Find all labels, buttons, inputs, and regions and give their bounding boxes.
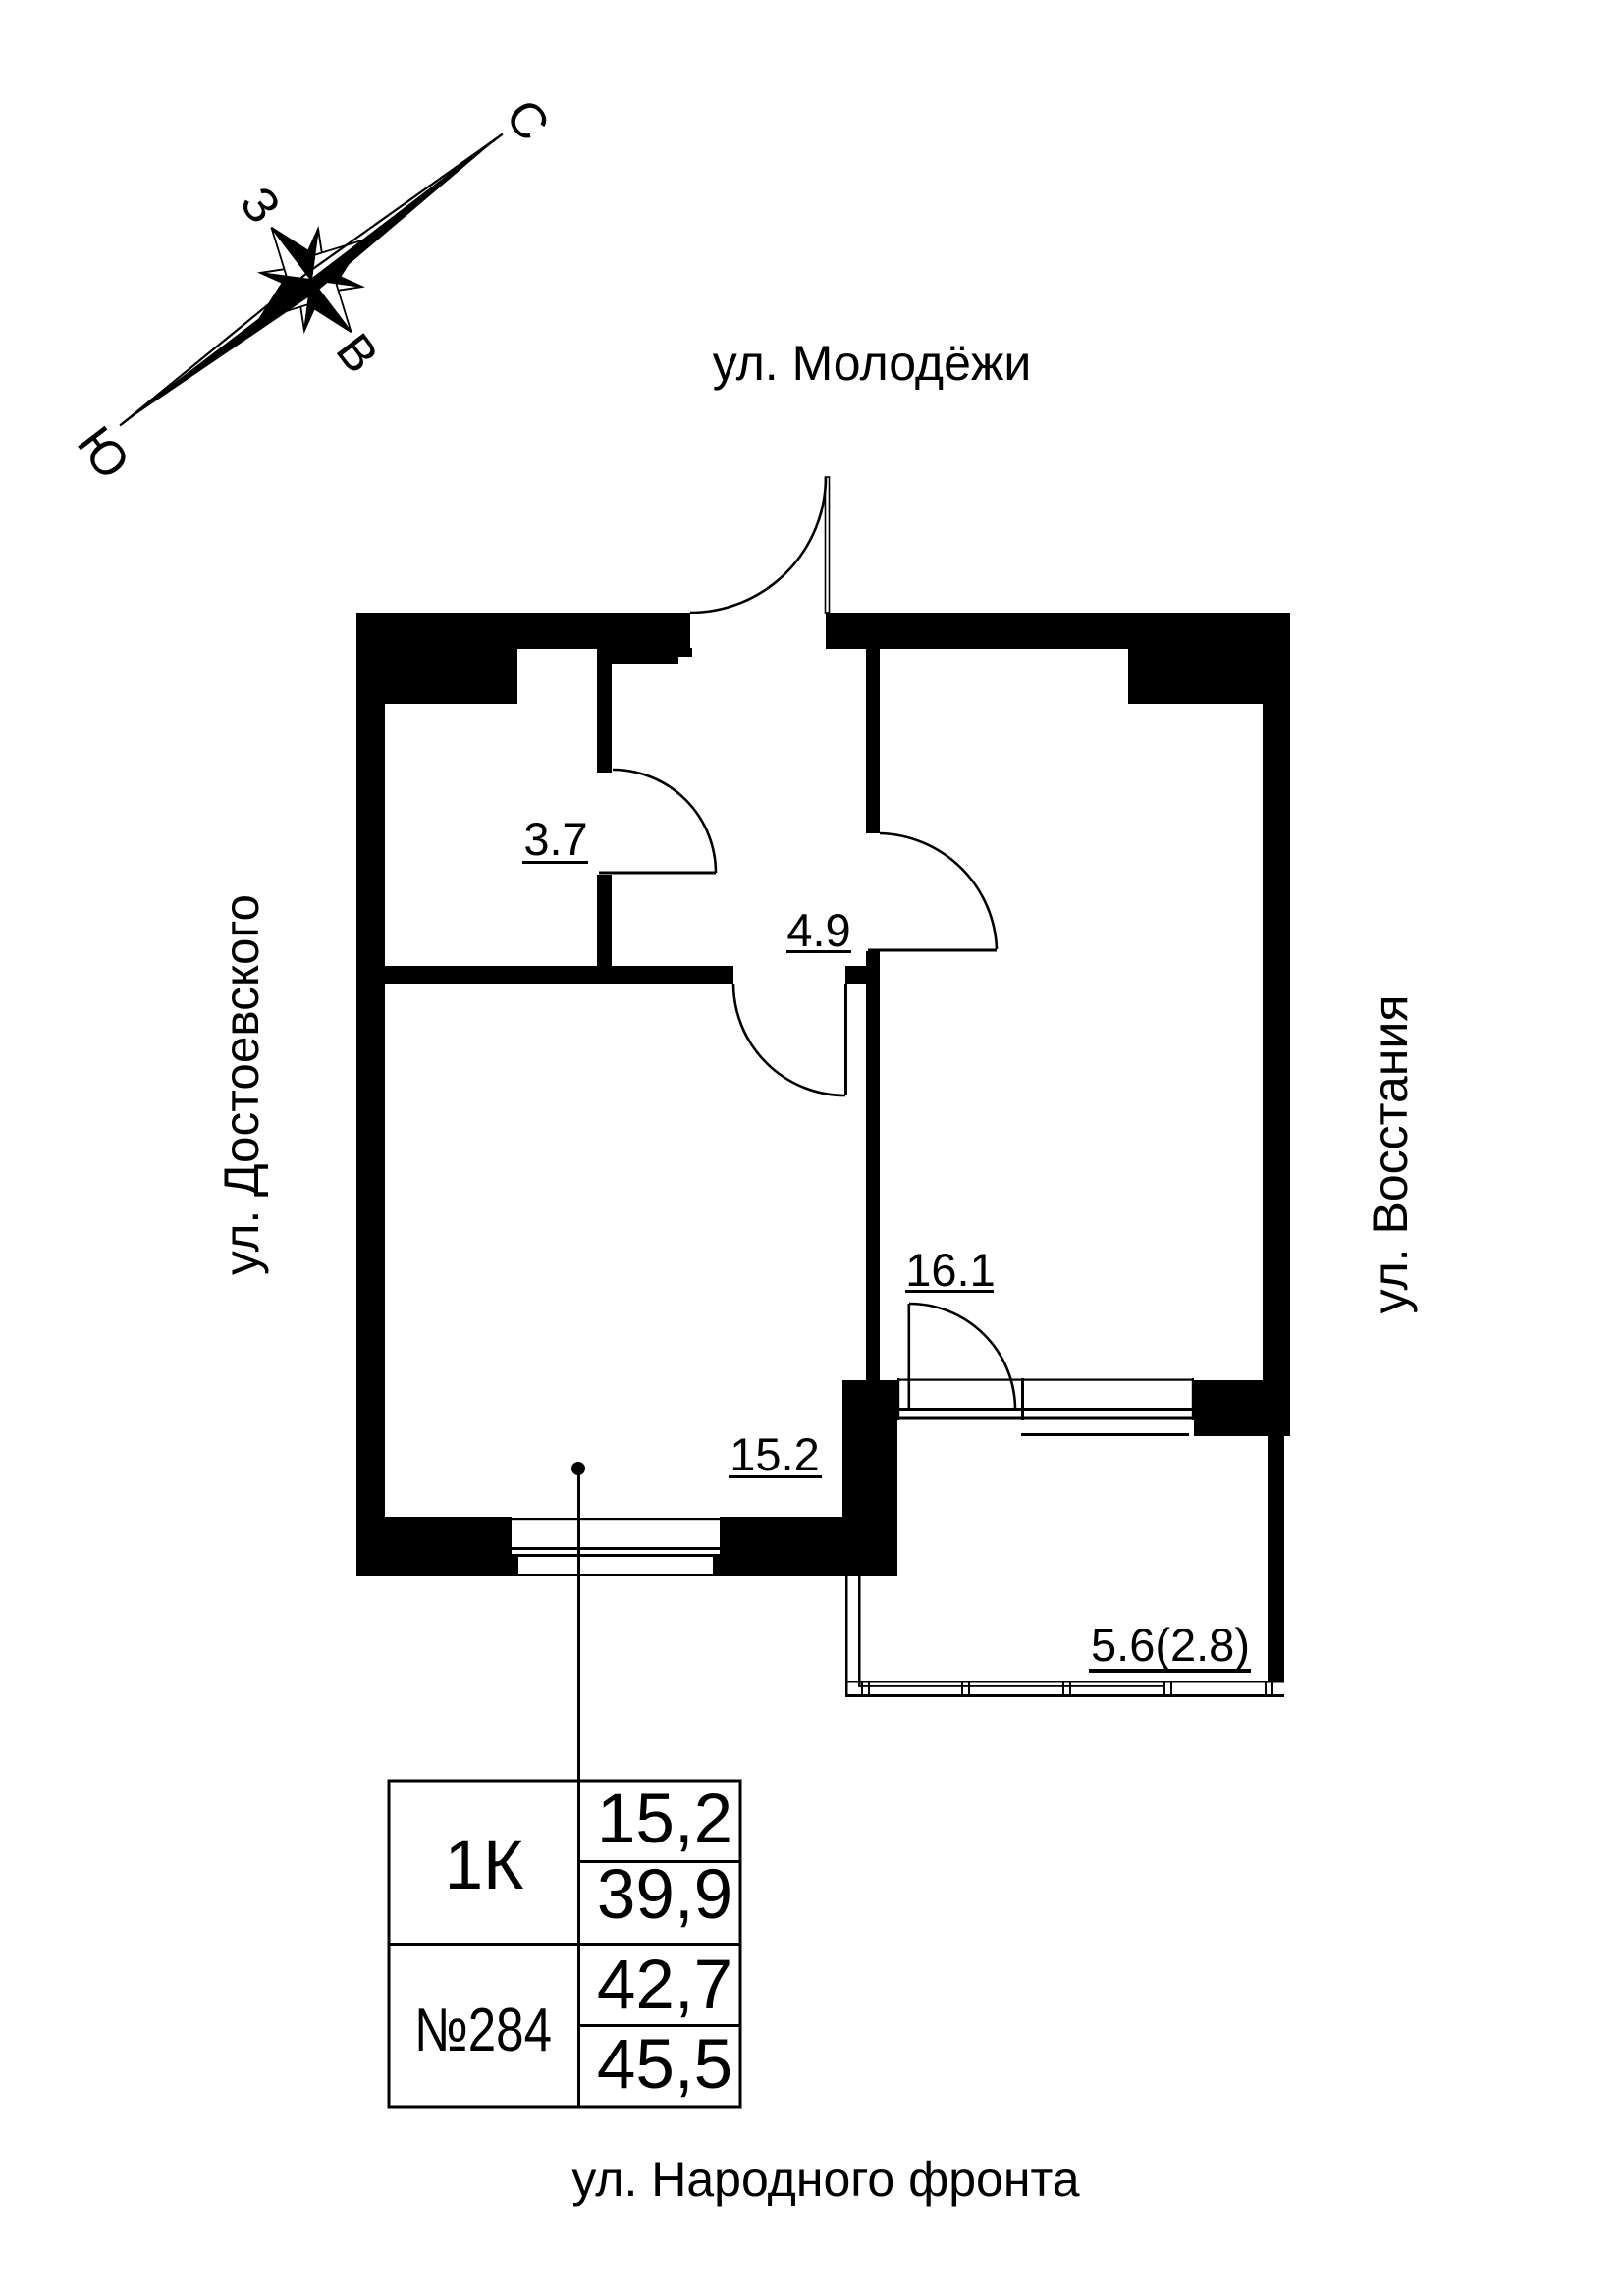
svg-text:№284: №284 [414, 1997, 552, 2064]
svg-text:15.2: 15.2 [730, 1428, 819, 1480]
svg-text:ул. Народного фронта: ул. Народного фронта [571, 2152, 1079, 2207]
svg-text:ул. Молодёжи: ул. Молодёжи [713, 336, 1032, 391]
svg-text:3.7: 3.7 [523, 813, 587, 865]
svg-text:4.9: 4.9 [786, 904, 850, 956]
svg-text:42,7: 42,7 [597, 1947, 732, 2024]
svg-text:ул. Достоевского: ул. Достоевского [214, 894, 269, 1275]
svg-text:45,5: 45,5 [597, 2026, 732, 2104]
svg-text:15,2: 15,2 [597, 1781, 732, 1858]
svg-text:ул. Восстания: ул. Восстания [1363, 995, 1418, 1314]
svg-text:16.1: 16.1 [905, 1244, 995, 1296]
svg-text:39,9: 39,9 [597, 1856, 732, 1934]
svg-text:5.6(2.8): 5.6(2.8) [1091, 1619, 1250, 1671]
svg-text:1К: 1К [445, 1827, 524, 1904]
